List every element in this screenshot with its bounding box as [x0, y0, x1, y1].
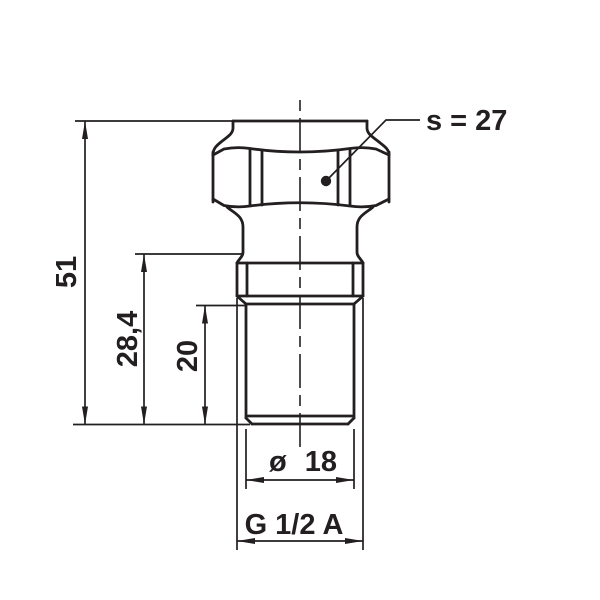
dimension-label-28-4: 28,4 — [112, 311, 144, 367]
arrow-down-icon — [82, 407, 88, 425]
arrow-up-icon — [82, 121, 88, 139]
collar-thread-chamfer-right — [354, 297, 362, 304]
arrow-up-icon — [202, 306, 208, 324]
dimension-overall-length: 51 — [51, 121, 250, 425]
dimension-shank-length: 28,4 — [112, 254, 242, 425]
arrow-right-icon — [345, 538, 363, 544]
callout-label-s27: s = 27 — [426, 105, 507, 137]
dimension-label-d18: ø 18 — [269, 446, 337, 478]
arrow-right-icon — [336, 477, 354, 483]
collar-thread-chamfer-left — [238, 297, 246, 304]
hex-bottom-edge — [213, 199, 389, 207]
hex-top-edge — [213, 148, 389, 155]
dimension-label-51: 51 — [51, 256, 83, 288]
fitting-technical-drawing: 51 28,4 20 ø 18 G 1/2 A s = 27 — [0, 0, 600, 600]
dimension-label-20: 20 — [172, 340, 204, 372]
arrow-down-icon — [202, 407, 208, 425]
arrow-left-icon — [246, 477, 264, 483]
dimension-label-g12a: G 1/2 A — [245, 509, 344, 541]
arrow-down-icon — [141, 407, 147, 425]
dimension-thread-length: 20 — [172, 306, 246, 425]
neck-right-profile — [357, 207, 373, 263]
arrow-up-icon — [141, 254, 147, 272]
drawing-canvas: 51 28,4 20 ø 18 G 1/2 A s = 27 — [0, 0, 600, 600]
